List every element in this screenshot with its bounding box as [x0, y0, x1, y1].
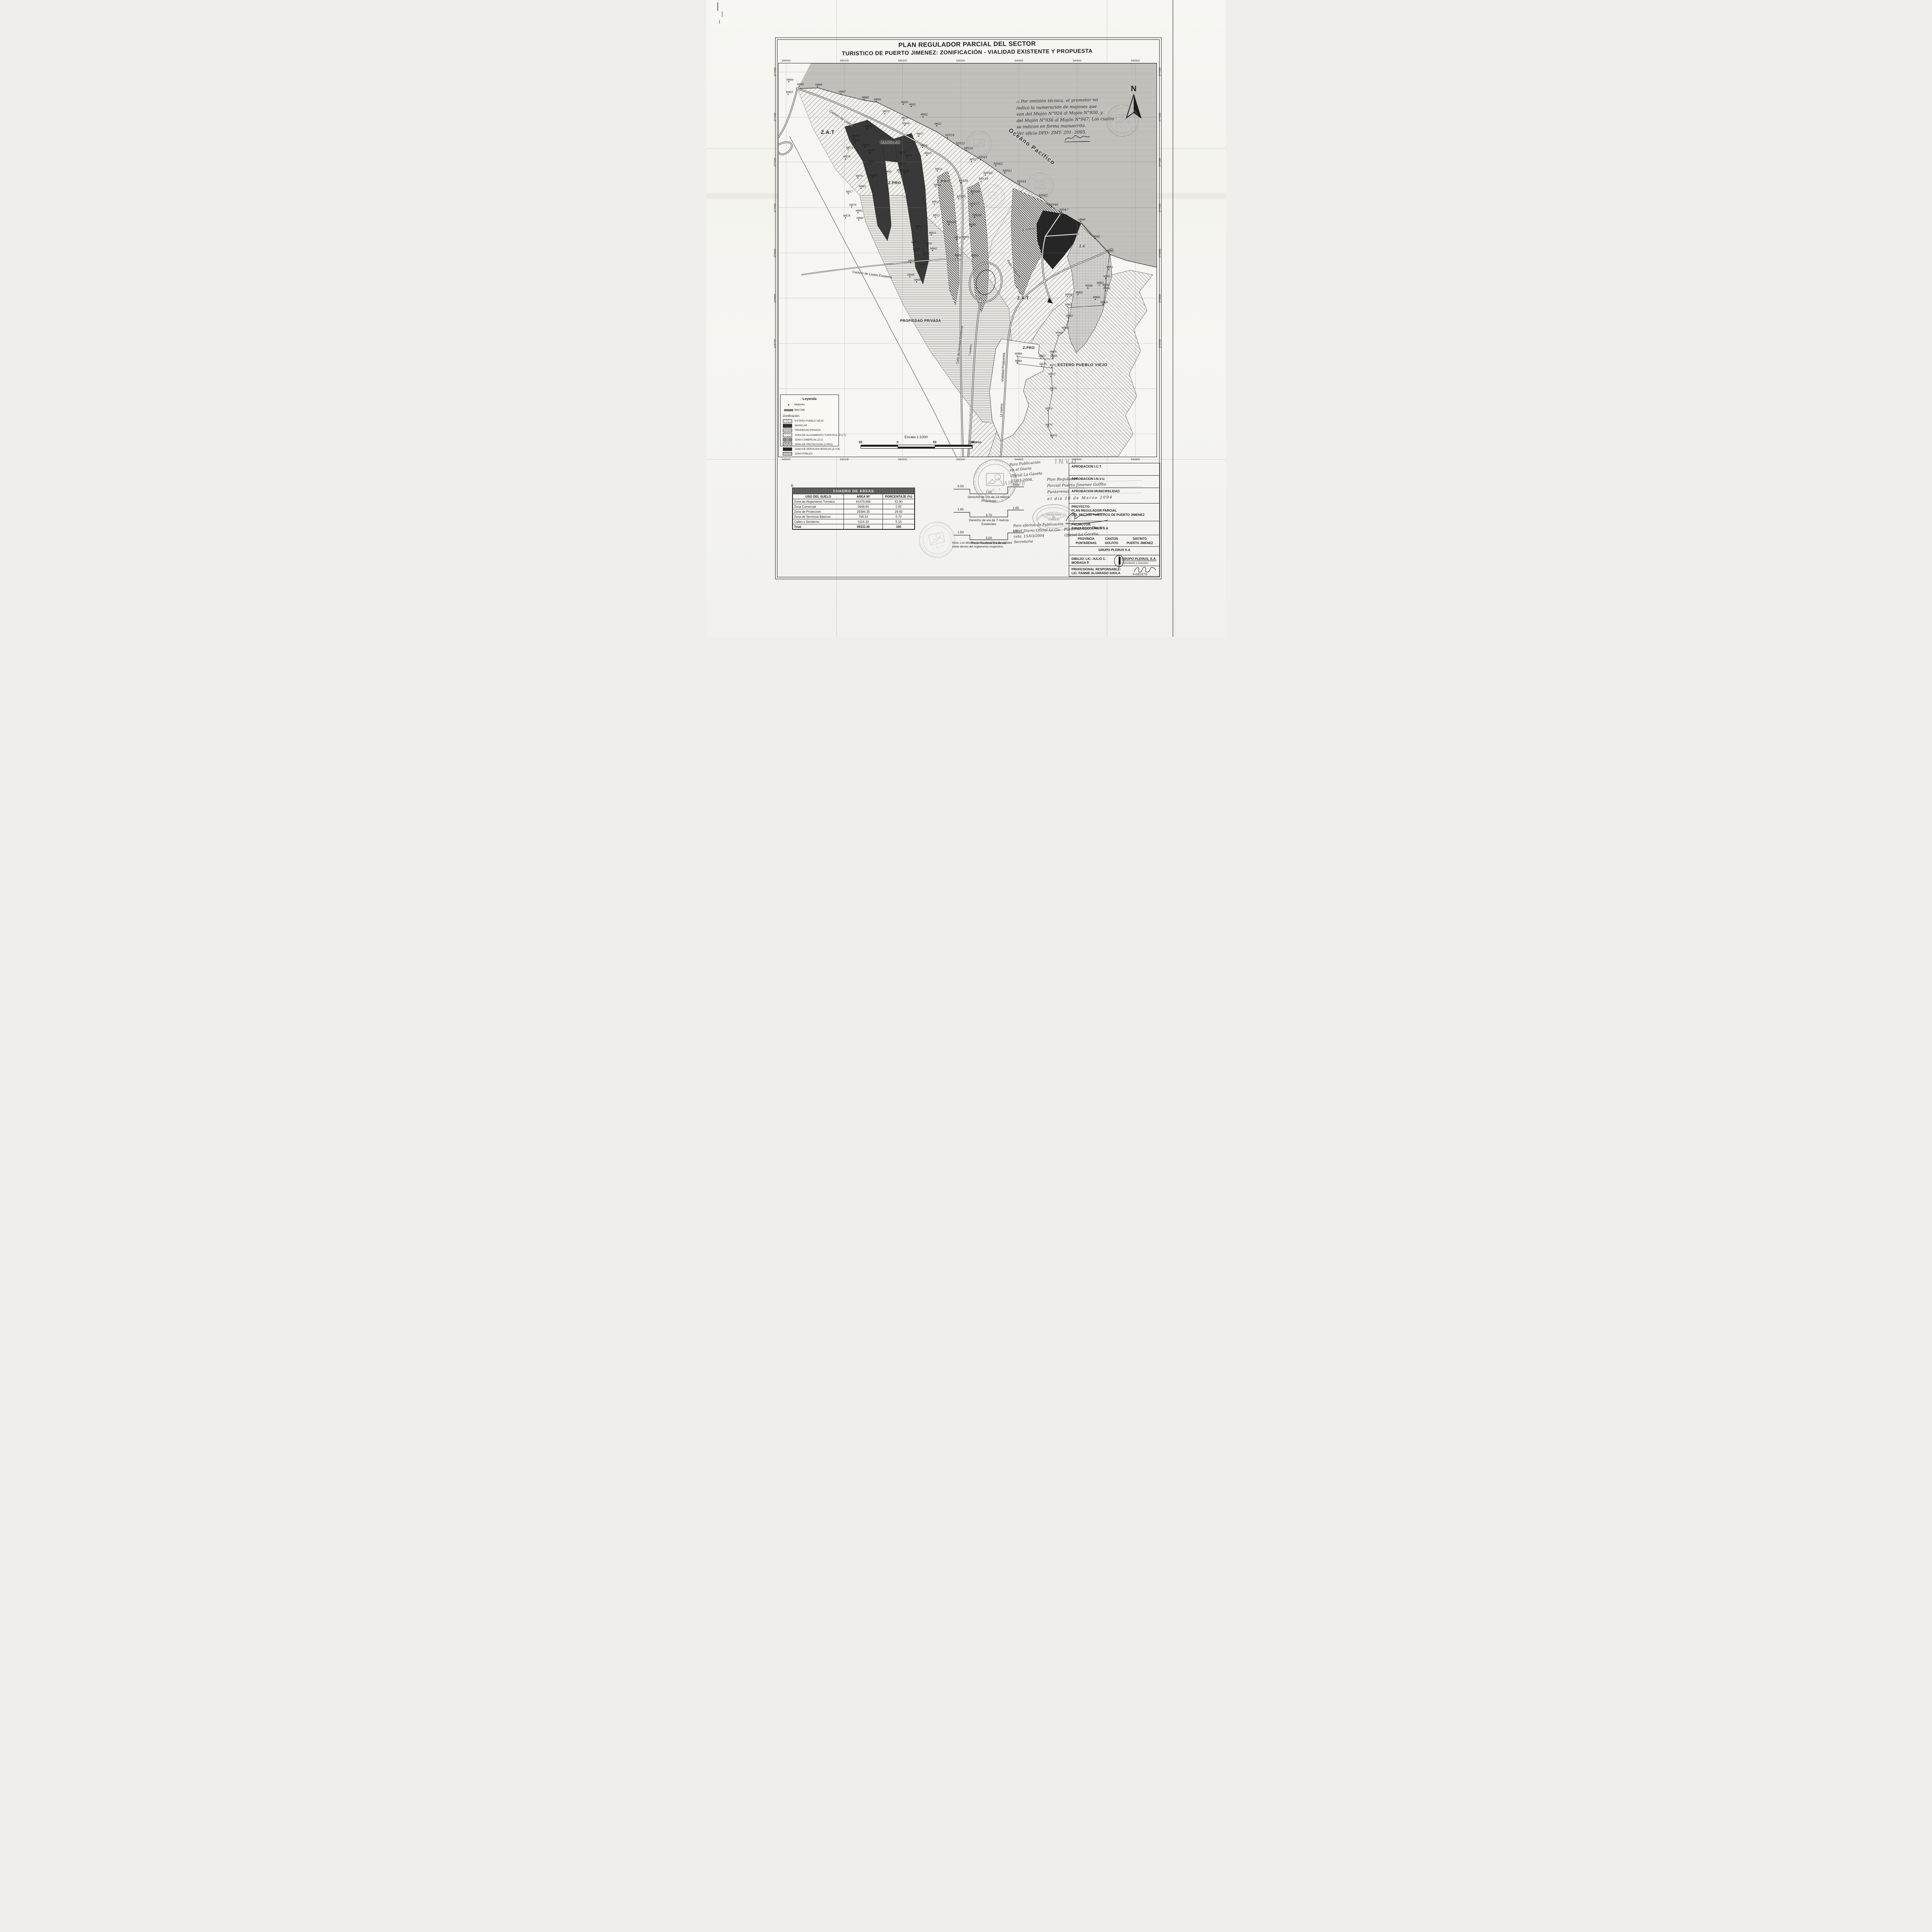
col-pct: PORCENTAJE (%)	[883, 494, 915, 499]
road-symbol	[783, 409, 794, 411]
legend-item: PROPIEDAD PRIVADA	[783, 429, 836, 432]
ict-stamp-svg: DIRECCION DE PLANEAMIENTO Y DESARROLLO T…	[1105, 104, 1139, 138]
scale-bar: Escala 1:1000 50050100metros	[858, 435, 974, 449]
pub-swatch	[783, 452, 792, 456]
svg-text:1.65: 1.65	[957, 507, 964, 511]
axis-label: 540600	[1131, 458, 1140, 461]
svg-text:SECRETARIA: SECRETARIA	[1046, 514, 1061, 516]
scale-checker	[861, 445, 973, 449]
axis-label: 277100	[1159, 158, 1162, 167]
zat-swatch	[783, 433, 792, 437]
legend-item: MANGLAR	[783, 424, 836, 428]
zone-label: Z.PRO	[1023, 346, 1035, 350]
legend-mojones-row: ▲ Mojones	[783, 403, 836, 406]
axis-label: 276800	[1159, 294, 1162, 303]
dibujo-row: DIBUJO: LIC. JULIO C. MORAGA P. GRUPO PL…	[1069, 555, 1160, 566]
svg-text:1.50: 1.50	[957, 530, 964, 534]
scale-bar-graphic: 50050100metros	[861, 445, 972, 449]
north-label: N	[1122, 85, 1145, 94]
zone-label: Z.A.T	[1017, 296, 1029, 301]
zc-swatch	[783, 438, 792, 442]
axis-label: 540300	[956, 458, 965, 461]
legend-items: ESTERO PUEBLO VIEJOMANGLARPROPIEDAD PRIV…	[783, 419, 836, 456]
svg-text:DIRECCION DE PLANEAMIENTO Y DE: DIRECCION DE PLANEAMIENTO Y DESARROLLO T…	[915, 518, 959, 561]
axis-label: 276700	[1159, 339, 1162, 348]
zone-label: Z.C	[1079, 244, 1085, 248]
zone-label: Z.A.T	[821, 129, 835, 135]
aprobado-stamp-text: APROB	[1004, 480, 1026, 487]
axis-label: 540400	[1015, 60, 1024, 62]
scale-title: Escala 1:1000	[858, 435, 974, 439]
road-label: 14 metros	[1000, 403, 1003, 417]
grupo-plerus-logo: GRUPO PLERUS, S.A. Consultores y Asesore…	[1119, 557, 1157, 565]
distrito-col: DISTRITO PUERTO JIMENEZ	[1127, 537, 1153, 545]
axis-label: 540300	[956, 60, 965, 62]
axis-label: 277000	[774, 203, 777, 212]
logo-line2: Consultores y Asesores	[1122, 562, 1148, 565]
table-row: Calles y Senderos5114.335.15	[793, 519, 915, 524]
scan-artifact	[719, 20, 720, 24]
scan-artifact	[722, 12, 723, 17]
table-row: Zona de Alojamiento Turístico61479.66661…	[793, 499, 915, 504]
ict-stamp-svg: DIRECCION DE PLANEAMIENTO Y DESARROLLO T…	[981, 184, 1005, 209]
ict-round-stamp: DIRECCION DE PLANEAMIENTO Y DESARROLLO T…	[1026, 172, 1054, 200]
svg-text:I. C. T.: I. C. T.	[989, 200, 997, 202]
scanned-map-sheet: PLAN REGULADOR PARCIAL DEL SECTOR TURIST…	[706, 0, 1226, 637]
svg-text:I. C. T.: I. C. T.	[975, 148, 983, 150]
svg-text:1.65: 1.65	[1013, 507, 1019, 510]
signature-icon	[1063, 508, 1110, 525]
vialidad-note-line2: están dentro del reglamento respectivo.	[952, 545, 1034, 549]
canton-label: CANTON	[1105, 537, 1118, 541]
triangle-icon: ▲	[787, 403, 790, 406]
scale-tick-label: 50	[859, 440, 862, 444]
axis-label: 277200	[774, 113, 777, 122]
table-total-row: Total99333.46100	[793, 524, 915, 529]
axis-label: 540100	[840, 60, 849, 62]
axis-label: 277100	[774, 158, 777, 167]
legend-title: Leyenda	[783, 397, 836, 401]
col-uso: USO DEL SUELO	[793, 494, 844, 499]
legend-item: ZONA PÚBLICA	[783, 452, 836, 456]
svg-text:DIRECCION DE PLANEAMIENTO Y DE: DIRECCION DE PLANEAMIENTO Y DESARROLLO T…	[981, 184, 1005, 208]
ict-stamp-svg: DIRECCION DE PLANEAMIENTO Y DESARROLLO T…	[1026, 172, 1054, 200]
scale-tick-label: 50	[933, 440, 937, 444]
priv-swatch	[783, 429, 792, 432]
area-table: CUADRO DE AREAS USO DEL SUELO AREA M² PO…	[792, 488, 915, 530]
axis-label: 540200	[898, 458, 907, 461]
svg-text:I. C. T.: I. C. T.	[1117, 126, 1128, 129]
responsable-label: PROFESIONAL RESPONSABLE:	[1071, 567, 1121, 571]
manglar-swatch	[783, 424, 792, 428]
zone-label: ESTERO PUEBLO VIEJO	[1058, 363, 1107, 367]
canton-value: GOLFITO	[1105, 541, 1118, 546]
note-mark-icon: ◁	[1016, 100, 1019, 104]
table-header-row: USO DEL SUELO AREA M² PORCENTAJE (%)	[793, 494, 915, 499]
svg-text:3.70: 3.70	[986, 513, 992, 517]
legend-redvial-label: Red Vial	[794, 409, 804, 412]
axis-label: 277000	[1159, 203, 1162, 212]
distrito-value: PUERTO JIMENEZ	[1127, 541, 1153, 546]
logo-signature-icon	[1113, 554, 1125, 568]
estero-swatch	[783, 419, 792, 423]
legend-item: ZONA DE SERVICIOS BÁSICOS (Z.S.B)	[783, 447, 836, 451]
scale-tick-label: 0	[897, 440, 898, 444]
axis-label: 277300	[774, 68, 777, 77]
svg-text:DIRECCION DE PLANEAMIENTO Y DE: DIRECCION DE PLANEAMIENTO Y DESARROLLO T…	[1106, 104, 1139, 137]
ict-stamp-svg: DIRECCION DE PLANEAMIENTO Y DESARROLLO T…	[966, 130, 993, 157]
scan-edge	[1172, 0, 1173, 637]
mojon-symbol: ▲	[783, 403, 794, 406]
svg-text:DIRECCION DE PLANEAMIENTO Y DE: DIRECCION DE PLANEAMIENTO Y DESARROLLO T…	[966, 131, 992, 157]
corner-mark: B	[791, 484, 793, 488]
legend-box: Leyenda ▲ Mojones Red Vial Zonificación …	[780, 395, 839, 446]
responsable-value: LIC. FANNIE ALVARADO DAVLA	[1071, 571, 1120, 575]
responsable-signature: 9-082476	[1133, 566, 1157, 576]
legend-item: ZONA DE PROTECCIÓN (Z.PRO)	[783, 442, 836, 446]
zpro-swatch	[783, 442, 792, 446]
aprobacion-ict-row: APROBACION I.C.T.	[1069, 463, 1160, 476]
table-row: Zona de Protección29384.3529.60	[793, 509, 915, 514]
distrito-label: DISTRITO	[1127, 537, 1153, 541]
responsable-row: PROFESIONAL RESPONSABLE: LIC. FANNIE ALV…	[1069, 566, 1160, 577]
table-row: Zona Comercial2648.602.65	[793, 504, 915, 509]
ict-round-stamp: DIRECCION DE PLANEAMIENTO Y DESARROLLO T…	[966, 130, 993, 157]
dibujo-label: DIBUJO: LIC. JULIO C. MORAGA P.	[1071, 557, 1119, 565]
axis-label: 540500	[1073, 60, 1082, 62]
svg-text:DIRECCION DE PLANEAMIENTO Y DE: DIRECCION DE PLANEAMIENTO Y DESARROLLO T…	[1027, 172, 1053, 199]
svg-text:I. C. T.: I. C. T.	[932, 544, 946, 550]
zone-label: Z.PRO	[937, 180, 950, 184]
logo-line1: GRUPO PLERUS, S.A.	[1122, 557, 1156, 561]
zsb-swatch	[783, 447, 792, 451]
road-line-icon	[784, 409, 793, 411]
zone-label: PROPIEDAD PRIVADA	[900, 319, 941, 323]
axis-label: 540600	[1131, 60, 1140, 62]
axis-label: 276800	[774, 294, 777, 303]
axis-label: 277300	[1159, 68, 1162, 77]
axis-label: 540000	[782, 60, 791, 62]
provincia-value: PUNTARENAS	[1076, 541, 1097, 546]
provincia-col: PROVINCIA PUNTARENAS	[1076, 537, 1097, 545]
area-table-title: CUADRO DE AREAS	[793, 488, 915, 494]
table-row: Zona de Servicios Básicos706.530.70	[793, 514, 915, 519]
axis-label: 276900	[1159, 248, 1162, 257]
svg-text:I. C. T.: I. C. T.	[987, 488, 1003, 492]
scan-artifact	[717, 2, 718, 11]
canton-col: CANTON GOLFITO	[1105, 537, 1118, 545]
handwritten-publish-note: Para Publicar DiarioOficial La Gaceta.	[1063, 507, 1132, 538]
handwritten-approval-note: Plan ReguladorParcial Puerto Jimenez Gol…	[1047, 474, 1142, 502]
axis-label: 540200	[898, 60, 907, 62]
area-table-grid: USO DEL SUELO AREA M² PORCENTAJE (%) Zon…	[793, 494, 915, 529]
legend-item: ESTERO PUEBLO VIEJO	[783, 419, 836, 423]
ict-round-stamp: DIRECCION DE PLANEAMIENTO Y DESARROLLO T…	[981, 184, 1005, 209]
legend-redvial-row: Red Vial	[783, 409, 836, 412]
svg-text:I. C. T.: I. C. T.	[1036, 190, 1045, 193]
axis-label: 540000	[782, 458, 791, 461]
legend-item: ZONA DE ALOJAMIENTO TURÍSTICO (Z.A.T)	[783, 433, 836, 437]
axis-label: 276700	[774, 339, 777, 348]
scale-unit: metros	[971, 440, 981, 444]
axis-label: 540100	[840, 458, 849, 461]
legend-zonification-title: Zonificación	[783, 414, 836, 418]
zone-label: Z.PRO	[888, 181, 901, 185]
map-area: ◁Por omisión técnica, el promotor noindi…	[778, 63, 1157, 457]
zone-label: MANGLAR	[880, 140, 900, 144]
ict-round-stamp: DIRECCION DE PLANEAMIENTO Y DESARROLLO T…	[1105, 104, 1139, 138]
axis-label: 276900	[774, 248, 777, 257]
legend-mojones-label: Mojones	[794, 403, 804, 406]
axis-label: 277200	[1159, 113, 1162, 122]
col-area: AREA M²	[844, 494, 883, 499]
svg-text:3.50: 3.50	[957, 484, 964, 488]
svg-text:3.00: 3.00	[986, 536, 992, 540]
legend-item: ZONA COMERCIAL (Z.C)	[783, 438, 836, 442]
